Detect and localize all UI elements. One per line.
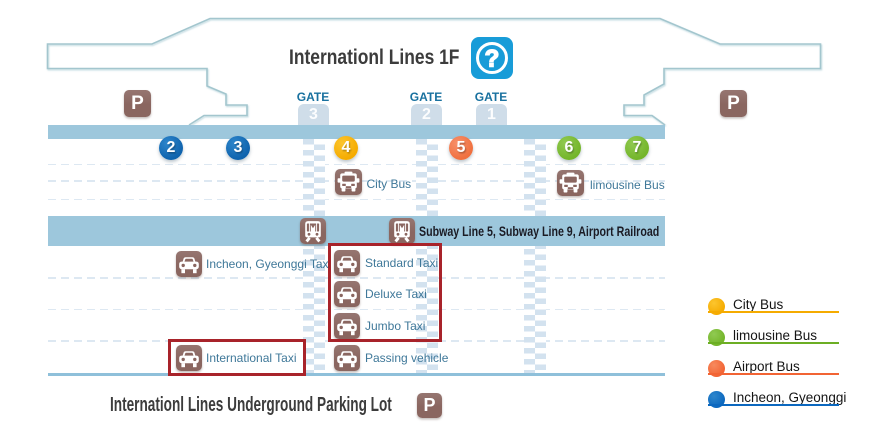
svg-text:?: ?: [485, 46, 500, 73]
